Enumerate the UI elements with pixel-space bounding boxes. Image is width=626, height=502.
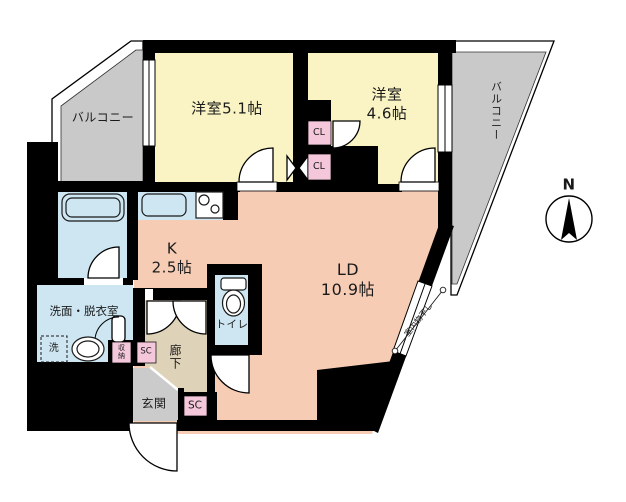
entrance-label: 玄関 bbox=[141, 397, 166, 412]
shoe-closet2-label: SC bbox=[188, 399, 202, 412]
compass-icon bbox=[546, 196, 592, 242]
entrance-door bbox=[129, 423, 177, 471]
shoe-closet1-label: SC bbox=[140, 347, 151, 358]
closet1-label: CL bbox=[313, 127, 325, 139]
kitchen-label: K 2.5帖 bbox=[152, 239, 193, 277]
balcony-right-shape bbox=[451, 41, 554, 295]
toilet-icon bbox=[221, 278, 246, 316]
bedroom1-label: 洋室5.1帖 bbox=[191, 100, 263, 119]
laundry-space-label: 洗 bbox=[49, 343, 60, 356]
floor-plan-drawing bbox=[0, 0, 626, 502]
balcony-left-label: バルコニー bbox=[72, 111, 134, 126]
toilet-label: トイレ bbox=[216, 318, 249, 331]
storage-label: 収納 bbox=[118, 344, 125, 360]
bedroom2-label: 洋室 4.6帖 bbox=[367, 85, 408, 123]
washroom-label: 洗面・脱衣室 bbox=[50, 304, 119, 318]
washbasin-icon bbox=[72, 337, 104, 361]
compass-north-label: N bbox=[562, 176, 575, 195]
hallway-label: 廊下 bbox=[169, 344, 181, 370]
floor-plan: 洋室5.1帖 洋室 4.6帖 LD 10.9帖 K 2.5帖 洗面・脱衣室 トイ… bbox=[0, 0, 626, 502]
living-dining-label: LD 10.9帖 bbox=[321, 260, 375, 300]
washroom-door bbox=[112, 316, 125, 342]
stove-icon bbox=[196, 192, 223, 218]
balcony-right-label: バルコニー bbox=[491, 81, 502, 141]
closet2-label: CL bbox=[313, 161, 325, 173]
